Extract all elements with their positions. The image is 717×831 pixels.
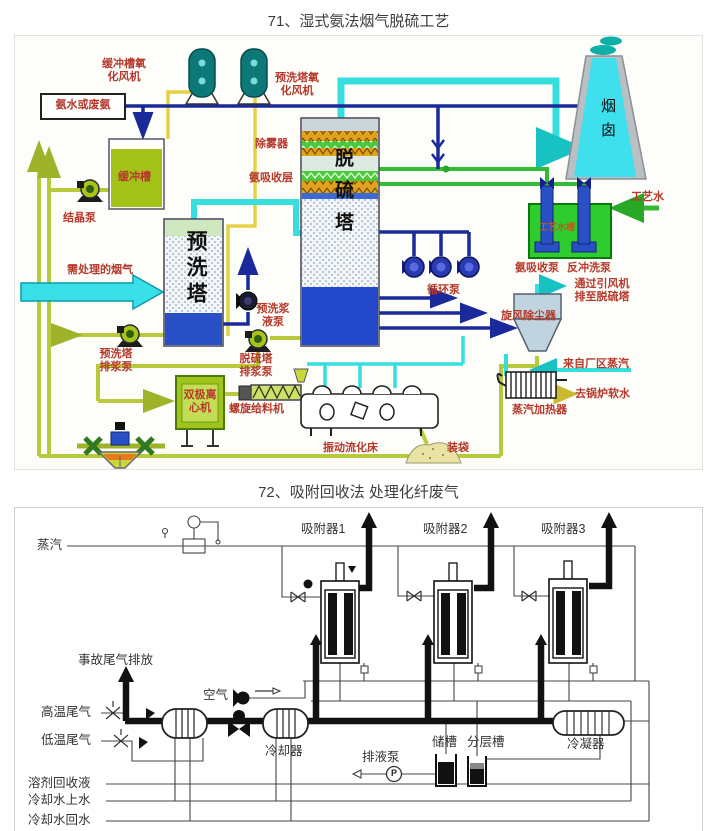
label-cooling-water-return: 冷却水回水	[28, 814, 91, 828]
process-water-tank	[529, 177, 611, 258]
label-chimney: 烟囱	[597, 98, 618, 146]
adsorber-vessels	[321, 561, 587, 663]
label-pump-p: P	[387, 768, 401, 778]
label-adsorber1: 吸附器1	[301, 523, 345, 537]
label-crystal-pump: 结晶泵	[63, 212, 96, 225]
prewash-discharge-pump	[117, 325, 143, 347]
label-buffer-fan: 缓冲槽氧化风机	[99, 58, 149, 84]
label-demister: 除雾器	[255, 138, 288, 151]
label-cold-tail-gas: 低温尾气	[41, 734, 91, 748]
label-prewash-tower: 预洗塔	[181, 230, 211, 308]
label-buffer-tank: 缓冲槽	[118, 171, 151, 184]
buffer-oxidation-fan	[186, 49, 218, 104]
label-hot-tail-gas: 高温尾气	[41, 706, 91, 720]
separation-tank	[468, 756, 486, 786]
adsorber-vessel-1	[321, 563, 359, 663]
pipe-junction	[443, 166, 450, 173]
label-to-desulf: 通过引风机排至脱硫塔	[571, 278, 633, 304]
desulf-discharge-pump	[245, 330, 271, 352]
label-circ-pump: 循环泵	[427, 284, 460, 297]
label-ammonia-absorb-pump: 氨吸收泵	[515, 262, 559, 275]
prewash-oxidation-fan	[238, 49, 270, 104]
label-desulf-discharge-pump: 脱硫塔排浆泵	[236, 353, 276, 379]
vibrating-fluidized-bed	[294, 369, 438, 436]
label-process-water: 工艺水	[631, 191, 664, 204]
label-flue-gas-in: 需处理的烟气	[67, 264, 133, 277]
label-storage-tank: 储槽	[432, 736, 457, 750]
document-page: 71、湿式氨法烟气脱硫工艺	[0, 0, 717, 831]
title-diagram-72: 72、吸附回收法 处理化纤废气	[0, 481, 717, 502]
label-condenser: 冷凝器	[567, 738, 605, 752]
label-centrifuge: 双极离心机	[182, 389, 218, 415]
screw-feeder	[239, 385, 301, 400]
label-cooling-water-supply: 冷却水上水	[28, 794, 91, 808]
circulation-pump-1	[402, 257, 424, 277]
circulation-pump-2	[429, 257, 451, 277]
diagram-adsorption-recovery: 蒸汽 吸附器1 吸附器2 吸附器3 事故尾气排放 高温尾气 低温尾气 空气 冷却…	[14, 507, 703, 831]
label-separation-tank: 分层槽	[467, 736, 505, 750]
label-prewash-discharge-pump: 预洗塔排浆泵	[96, 348, 136, 374]
filter-valve-assembly	[77, 422, 165, 468]
label-drain-pump: 排液泵	[362, 751, 400, 765]
label-screw-feeder: 螺旋给料机	[229, 403, 284, 416]
label-prewash-fan: 预洗塔氧化风机	[272, 72, 322, 98]
label-adsorber3: 吸附器3	[541, 523, 585, 537]
crystallization-pump	[77, 180, 103, 202]
label-fluidized-bed: 振动流化床	[323, 442, 378, 455]
adsorber-vessel-2	[434, 563, 472, 663]
label-bagging: 装袋	[447, 442, 469, 455]
label-backwash-pump: 反冲洗泵	[567, 262, 611, 275]
label-cooler: 冷却器	[265, 745, 303, 759]
steam-heater	[498, 372, 567, 398]
label-prewash-slurry-pump: 预洗浆液泵	[253, 303, 293, 329]
label-steam: 蒸汽	[37, 539, 62, 553]
label-process-water-tank: 工艺水槽	[539, 222, 575, 233]
condenser	[553, 711, 624, 735]
title-diagram-71: 71、湿式氨法烟气脱硫工艺	[0, 10, 717, 31]
adsorption-drawing	[15, 508, 702, 831]
flue-gas-inlet-arrow	[21, 275, 163, 309]
label-cyclone: 旋风除尘器	[501, 310, 556, 323]
label-ammonia-feed: 氨水或废氨	[48, 99, 118, 112]
label-emergency-vent: 事故尾气排放	[78, 654, 153, 668]
diagram-wet-ammonia-fgd: 缓冲槽氧化风机 氨水或废氨 缓冲槽 结晶泵 预洗塔氧化风机 除雾器 氨吸收层 需…	[14, 35, 703, 470]
storage-tank	[436, 754, 456, 786]
adsorber-vessel-3	[549, 561, 587, 663]
label-desulf-tower: 脱硫塔	[329, 148, 356, 244]
label-ammonia-absorb-layer: 氨吸收层	[249, 172, 293, 185]
label-steam-from-plant: 来自厂区蒸汽	[563, 358, 629, 371]
thick-gas-pipes	[125, 526, 609, 721]
label-solvent-recovery: 溶剂回收液	[28, 777, 91, 791]
label-air: 空气	[203, 689, 228, 703]
circulation-pump-3	[457, 257, 479, 277]
label-steam-heater: 蒸汽加热器	[512, 404, 567, 417]
label-adsorber2: 吸附器2	[423, 523, 467, 537]
label-to-boiler-water: 去锅炉软水	[575, 388, 630, 401]
